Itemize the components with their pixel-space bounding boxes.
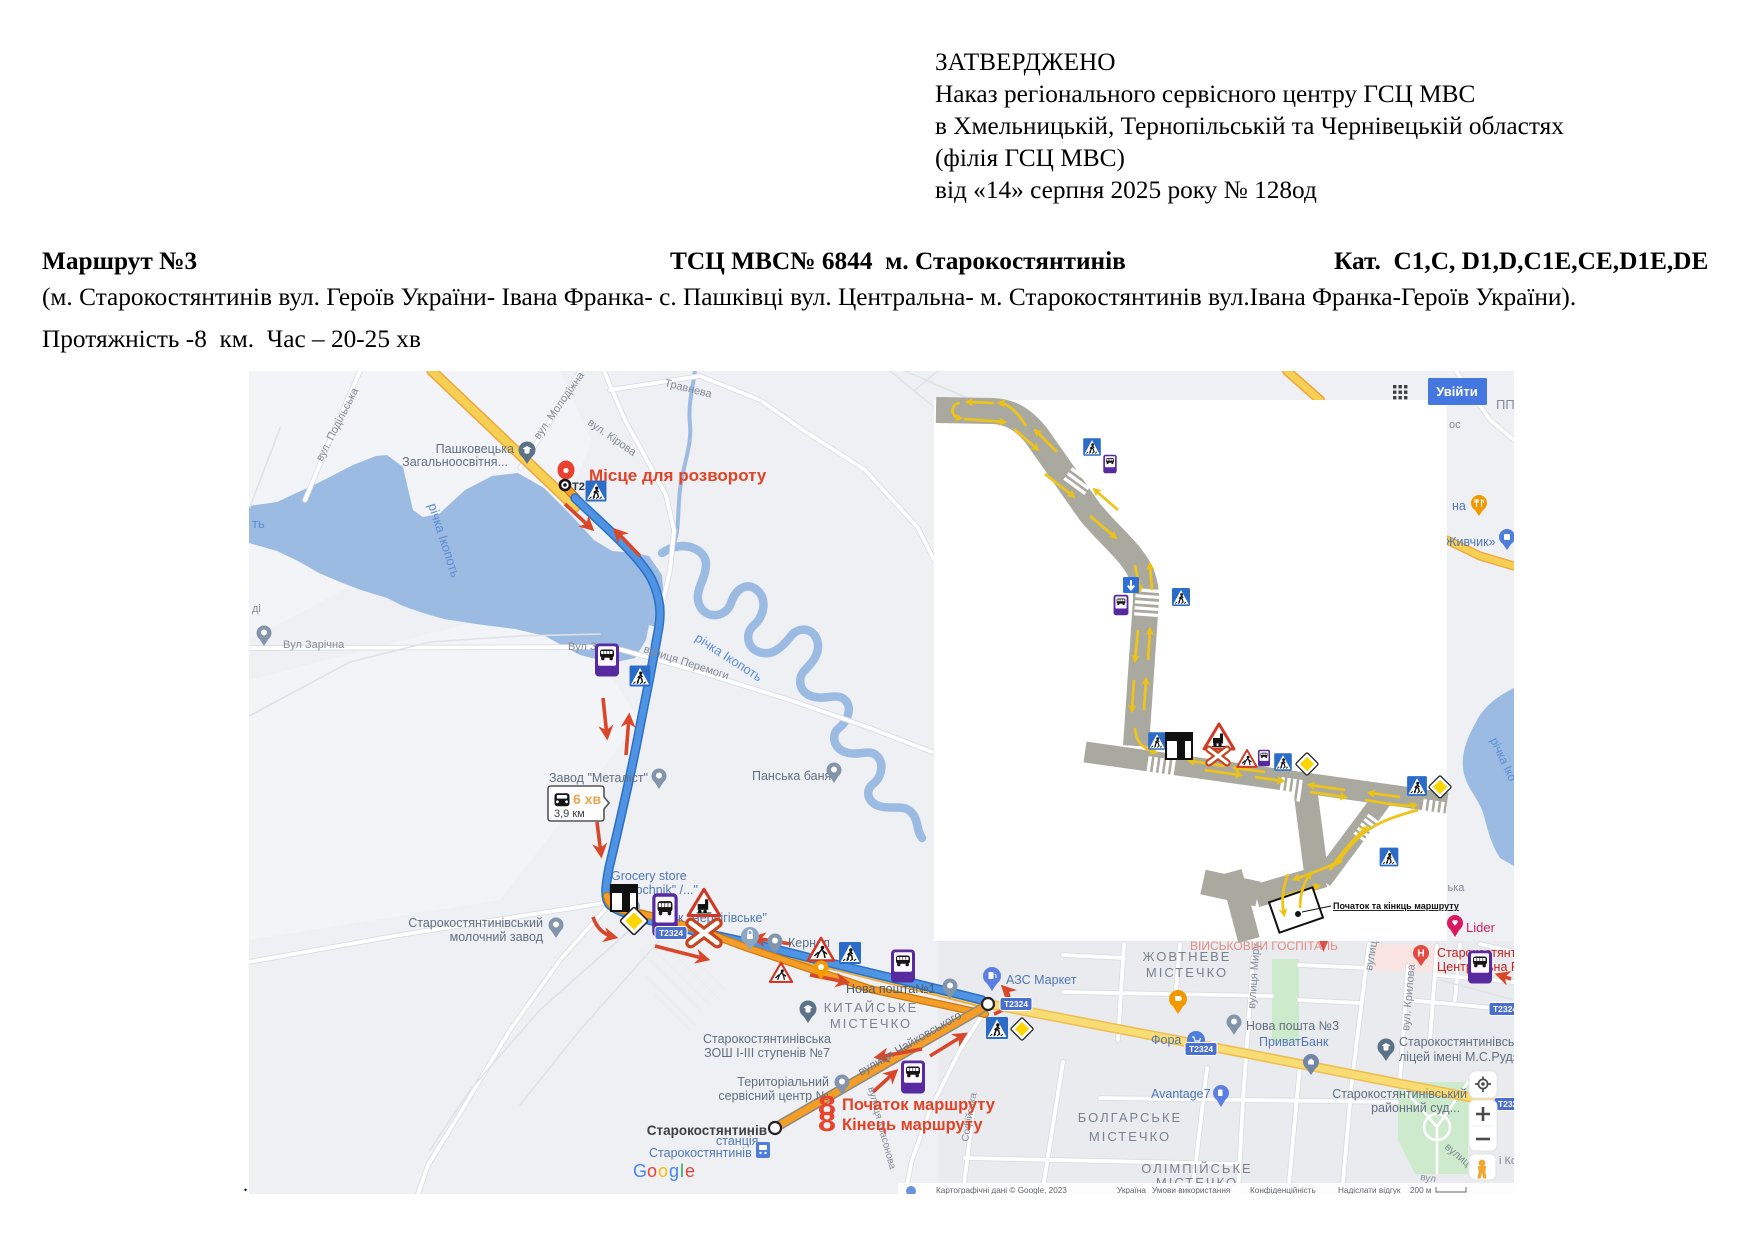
svg-text:Grocery store: Grocery store [611, 869, 687, 883]
svg-text:молочний завод: молочний завод [450, 930, 544, 944]
svg-text:на: на [1452, 499, 1466, 513]
svg-text:МІСТЕЧКО: МІСТЕЧКО [1089, 1129, 1171, 1144]
svg-text:АЗС Маркет: АЗС Маркет [1006, 973, 1077, 987]
svg-text:200 м: 200 м [1410, 1186, 1432, 1194]
svg-text:ос: ос [1449, 419, 1461, 431]
svg-text:Конфіденційність: Конфіденційність [1250, 1186, 1316, 1194]
svg-text:Lider: Lider [1466, 920, 1496, 935]
svg-text:Надіслати відгук: Надіслати відгук [1338, 1186, 1401, 1194]
svg-text:Старокостянтинів: Старокостянтинів [647, 1123, 767, 1138]
svg-text:Живчик»: Живчик» [1445, 535, 1496, 549]
svg-text:8: 8 [818, 1107, 836, 1138]
svg-text:l: l [680, 1161, 684, 1181]
svg-text:Україна: Україна [1117, 1186, 1146, 1194]
svg-text:Картографічні дані © Google, 2: Картографічні дані © Google, 2023 [936, 1186, 1067, 1194]
svg-text:ть: ть [252, 516, 265, 531]
svg-text:районний суд...: районний суд... [1371, 1101, 1460, 1115]
svg-text:Панська баня: Панська баня [752, 769, 831, 783]
svg-text:g: g [669, 1161, 679, 1181]
svg-text:МІСТЕЧКО: МІСТЕЧКО [1146, 965, 1228, 980]
svg-text:Початок та кінкць маршруту: Початок та кінкць маршруту [1333, 901, 1459, 911]
svg-text:Загальноосвітня...: Загальноосвітня... [402, 455, 508, 469]
svg-text:Фора: Фора [1151, 1033, 1181, 1047]
svg-text:БОЛГАРСЬКЕ: БОЛГАРСЬКЕ [1078, 1110, 1182, 1125]
svg-text:ліцей імені М.С.Рудя: ліцей імені М.С.Рудя [1399, 1050, 1514, 1064]
svg-text:Н: Н [1417, 949, 1424, 960]
svg-text:Місце для розвороту: Місце для розвороту [589, 466, 767, 485]
svg-text:Пашковецька: Пашковецька [436, 442, 514, 456]
svg-text:Початок маршруту: Початок маршруту [842, 1096, 996, 1114]
svg-text:Кінець маршруту: Кінець маршруту [842, 1116, 983, 1134]
svg-text:3,9 км: 3,9 км [554, 808, 585, 820]
svg-text:Умови використання: Умови використання [1152, 1186, 1230, 1194]
svg-text:Старокостянтинівський: Старокостянтинівський [408, 916, 543, 930]
svg-text:Завод "Металіст": Завод "Металіст" [549, 771, 648, 785]
svg-text:Старокостянтинівський: Старокостянтинівський [1332, 1087, 1467, 1101]
svg-text:Старокостянтинівська: Старокостянтинівська [703, 1032, 831, 1046]
svg-text:Територіальний: Територіальний [737, 1075, 829, 1089]
svg-text:Старокостянтинів 1: Старокостянтинів 1 [649, 1146, 762, 1160]
svg-text:ПП: ПП [1496, 397, 1514, 412]
svg-text:Увійти: Увійти [1436, 384, 1478, 399]
svg-text:Старокостянтинівсь: Старокостянтинівсь [1399, 1035, 1514, 1049]
svg-text:G: G [633, 1161, 647, 1181]
svg-text:o: o [647, 1161, 657, 1181]
svg-text:і Ко: і Ко [1499, 1155, 1514, 1167]
svg-text:Нова пошта№1: Нова пошта№1 [846, 982, 936, 996]
svg-text:Avantage7: Avantage7 [1151, 1087, 1211, 1101]
svg-text:o: o [658, 1161, 668, 1181]
svg-text:Вул Зарічна: Вул Зарічна [283, 639, 345, 651]
svg-text:ді: ді [252, 603, 261, 615]
svg-text:КИТАЙСЬКЕ: КИТАЙСЬКЕ [824, 1000, 919, 1015]
svg-text:ЗОШ І-ІІІ ступенів №7: ЗОШ І-ІІІ ступенів №7 [704, 1046, 830, 1060]
svg-text:Нова пошта №3: Нова пошта №3 [1246, 1019, 1339, 1033]
svg-text:МІСТЕЧКО: МІСТЕЧКО [830, 1016, 912, 1031]
svg-text:ОЛІМПІЙСЬКЕ: ОЛІМПІЙСЬКЕ [1141, 1161, 1252, 1176]
svg-text:6 хв: 6 хв [573, 791, 601, 807]
svg-text:e: e [685, 1161, 695, 1181]
svg-text:ПриватБанк: ПриватБанк [1259, 1035, 1329, 1049]
svg-text:сервісний центр №: сервісний центр № [718, 1089, 829, 1103]
